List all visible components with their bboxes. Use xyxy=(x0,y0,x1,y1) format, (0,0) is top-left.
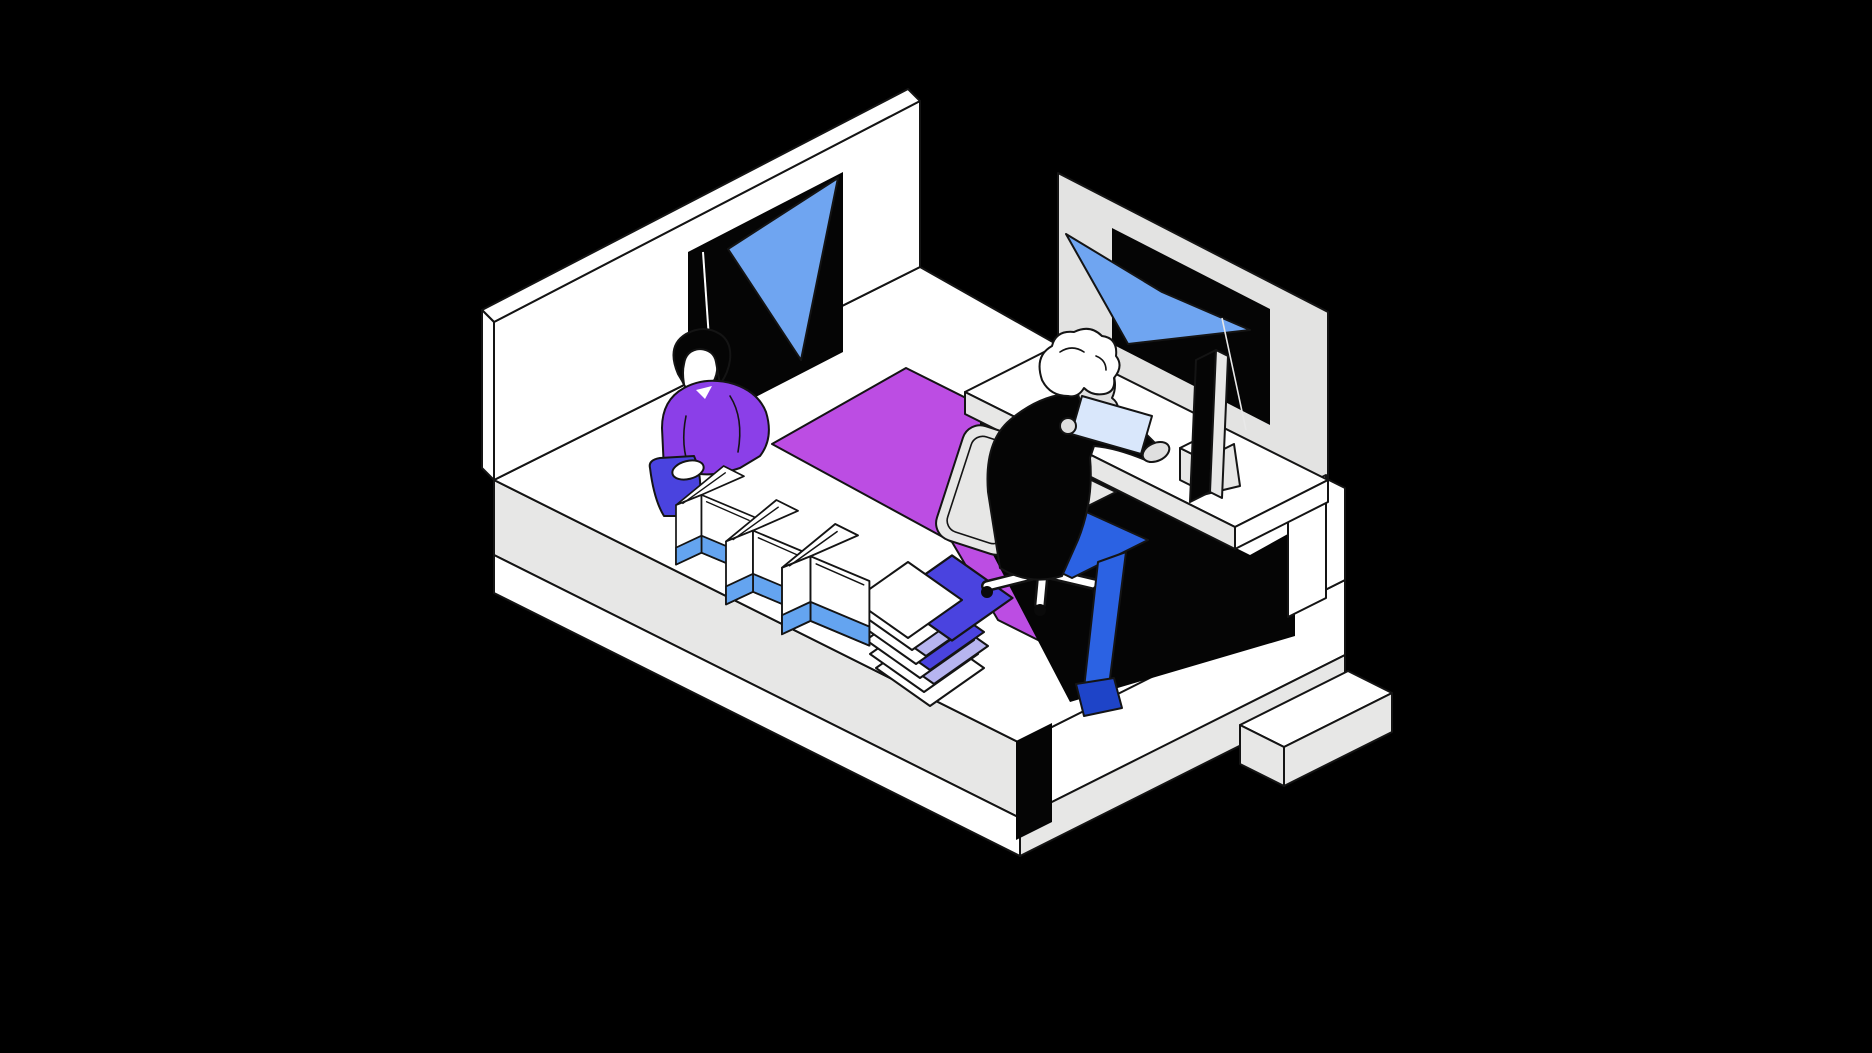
caster-wheel xyxy=(981,586,993,598)
seated-person-hand-left xyxy=(1060,418,1076,434)
isometric-office-illustration xyxy=(0,0,1872,1053)
platform-corner-notch xyxy=(1016,723,1052,840)
seated-person-shoe xyxy=(1076,678,1122,716)
caster-wheel xyxy=(1034,604,1046,616)
left-wall-end-cap xyxy=(482,310,494,480)
illustration-canvas xyxy=(0,0,1872,1053)
